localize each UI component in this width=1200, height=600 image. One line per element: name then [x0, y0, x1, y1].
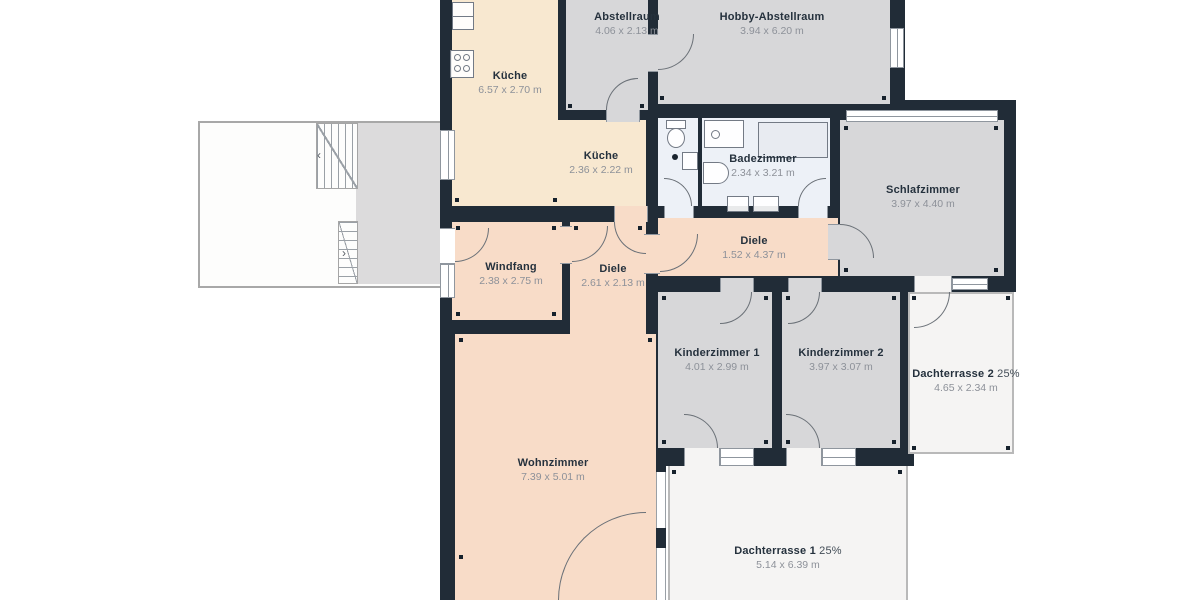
room-label-dachterrasse-2: Dachterrasse 2 25% 4.65 x 2.34 m	[912, 368, 1020, 394]
room-label-hobby-abstellraum: Hobby-Abstellraum 3.94 x 6.20 m	[720, 11, 825, 37]
room-name: Kinderzimmer 1	[674, 347, 759, 359]
door-opening-badezimmer	[798, 206, 828, 218]
washer-symbol	[753, 196, 779, 212]
corner-tick	[844, 126, 848, 130]
window	[440, 130, 455, 180]
room-dims: 1.52 x 4.37 m	[722, 249, 786, 261]
sink-divider-line	[453, 16, 473, 17]
burner-icon	[463, 54, 470, 61]
corner-tick	[892, 296, 896, 300]
corner-tick	[456, 312, 460, 316]
washer-symbol	[727, 196, 749, 212]
room-dims: 7.39 x 5.01 m	[518, 471, 589, 483]
stair-landing	[356, 123, 441, 284]
corner-tick	[553, 198, 557, 202]
room-name: Schlafzimmer	[886, 184, 960, 196]
kitchen-sink-symbol	[452, 2, 474, 30]
bath-sink-symbol	[704, 120, 744, 148]
toilet-symbol	[667, 128, 685, 148]
corner-tick	[892, 440, 896, 444]
room-label-windfang: Windfang 2.38 x 2.75 m	[479, 261, 543, 287]
corner-tick	[912, 296, 916, 300]
door-opening-kz1-terrasse	[684, 448, 720, 466]
room-dachterrasse-1	[668, 466, 908, 600]
room-name: Dachterrasse 2 25%	[912, 368, 1020, 380]
room-label-diele-2: Diele 2.61 x 2.13 m	[581, 263, 645, 289]
room-dims: 3.97 x 3.07 m	[798, 361, 883, 373]
door-opening-diele	[644, 234, 660, 274]
corner-tick	[459, 555, 463, 559]
room-name: Abstellraum	[594, 11, 660, 23]
stair-direction-arrow: ›	[342, 247, 346, 259]
room-name: Küche	[478, 70, 542, 82]
corner-tick	[660, 96, 664, 100]
room-label-diele-corridor: Diele 1.52 x 4.37 m	[722, 235, 786, 261]
door-opening-dachterrasse-2	[914, 276, 952, 292]
room-dims: 2.34 x 3.21 m	[729, 167, 796, 179]
glass-wall-mullion	[656, 528, 666, 548]
corner-tick	[898, 470, 902, 474]
corner-tick	[552, 312, 556, 316]
room-name: Dachterrasse 1 25%	[734, 545, 842, 557]
corner-tick	[764, 296, 768, 300]
room-name: Diele	[581, 263, 645, 275]
corner-tick	[912, 446, 916, 450]
window	[952, 278, 988, 290]
room-name: Badezimmer	[729, 153, 796, 165]
stove-symbol	[450, 50, 474, 78]
door-opening-kinderzimmer-1	[720, 278, 754, 292]
room-dims: 2.61 x 2.13 m	[581, 277, 645, 289]
corner-tick	[459, 338, 463, 342]
faucet-icon	[711, 130, 720, 139]
stair-direction-arrow: ‹	[317, 149, 321, 161]
door-opening-kinderzimmer-2	[788, 278, 822, 292]
burner-icon	[454, 65, 461, 72]
wall-left-lower	[440, 470, 455, 600]
room-label-kinderzimmer-2: Kinderzimmer 2 3.97 x 3.07 m	[798, 347, 883, 373]
corner-tick	[844, 268, 848, 272]
room-dims: 4.65 x 2.34 m	[912, 382, 1020, 394]
door-opening-kz2-terrasse	[786, 448, 822, 466]
door-opening-entrance	[440, 228, 455, 264]
room-name: Kinderzimmer 2	[798, 347, 883, 359]
room-label-abstellraum: Abstellraum 4.06 x 2.13 m	[594, 11, 660, 37]
room-name: Diele	[722, 235, 786, 247]
room-name-text: Dachterrasse 1	[734, 545, 816, 557]
room-name: Wohnzimmer	[518, 457, 589, 469]
room-percentage: 25%	[997, 368, 1020, 380]
door-opening-abstellraum	[606, 110, 640, 122]
room-dims: 2.38 x 2.75 m	[479, 275, 543, 287]
burner-icon	[463, 65, 470, 72]
room-dims: 3.97 x 4.40 m	[886, 198, 960, 210]
corner-tick	[994, 268, 998, 272]
window	[890, 28, 904, 68]
corner-tick	[662, 296, 666, 300]
corner-tick	[456, 226, 460, 230]
corner-tick	[882, 96, 886, 100]
room-dims: 3.94 x 6.20 m	[720, 25, 825, 37]
room-label-kueche-1: Küche 6.57 x 2.70 m	[478, 70, 542, 96]
corner-tick	[648, 338, 652, 342]
room-percentage: 25%	[819, 545, 842, 557]
room-name: Küche	[569, 150, 633, 162]
room-dims: 2.36 x 2.22 m	[569, 164, 633, 176]
door-opening-schlafzimmer	[828, 224, 840, 260]
room-name-text: Dachterrasse 2	[912, 368, 994, 380]
room-kueche-1	[452, 0, 558, 206]
corner-tick	[662, 440, 666, 444]
door-opening-wc	[664, 206, 694, 218]
room-name: Windfang	[479, 261, 543, 273]
window	[440, 264, 455, 298]
corner-tick	[638, 226, 642, 230]
bathtub-symbol	[703, 162, 729, 184]
room-dims: 6.57 x 2.70 m	[478, 84, 542, 96]
corner-tick	[672, 470, 676, 474]
room-label-badezimmer: Badezimmer 2.34 x 3.21 m	[729, 153, 796, 179]
room-label-wohnzimmer: Wohnzimmer 7.39 x 5.01 m	[518, 457, 589, 483]
corner-tick	[640, 104, 644, 108]
room-dims: 4.01 x 2.99 m	[674, 361, 759, 373]
floorplan-canvas: ‹ ›	[0, 0, 1200, 600]
corner-tick	[574, 226, 578, 230]
room-dims: 4.06 x 2.13 m	[594, 25, 660, 37]
corner-tick	[786, 440, 790, 444]
corner-tick	[568, 104, 572, 108]
stairwell-annex: ‹ ›	[198, 121, 445, 288]
corner-tick	[455, 198, 459, 202]
door-opening-kueche	[614, 206, 648, 222]
room-dims: 5.14 x 6.39 m	[734, 559, 842, 571]
corner-tick	[552, 226, 556, 230]
window	[822, 448, 856, 466]
corner-tick	[764, 440, 768, 444]
window-band-schlafzimmer	[846, 110, 998, 122]
window	[720, 448, 754, 466]
wc-sink-symbol	[682, 152, 698, 170]
room-name: Hobby-Abstellraum	[720, 11, 825, 23]
room-label-schlafzimmer: Schlafzimmer 3.97 x 4.40 m	[886, 184, 960, 210]
drain-dot	[672, 154, 678, 160]
burner-icon	[454, 54, 461, 61]
corner-tick	[1006, 296, 1010, 300]
door-opening-windfang	[560, 226, 572, 264]
corner-tick	[1006, 446, 1010, 450]
door-opening-hobby	[648, 34, 658, 72]
stair-flight-upper	[316, 123, 358, 189]
room-label-kueche-2: Küche 2.36 x 2.22 m	[569, 150, 633, 176]
room-label-dachterrasse-1: Dachterrasse 1 25% 5.14 x 6.39 m	[734, 545, 842, 571]
corner-tick	[786, 296, 790, 300]
corner-tick	[994, 126, 998, 130]
stair-flight-lower	[338, 221, 358, 284]
room-label-kinderzimmer-1: Kinderzimmer 1 4.01 x 2.99 m	[674, 347, 759, 373]
